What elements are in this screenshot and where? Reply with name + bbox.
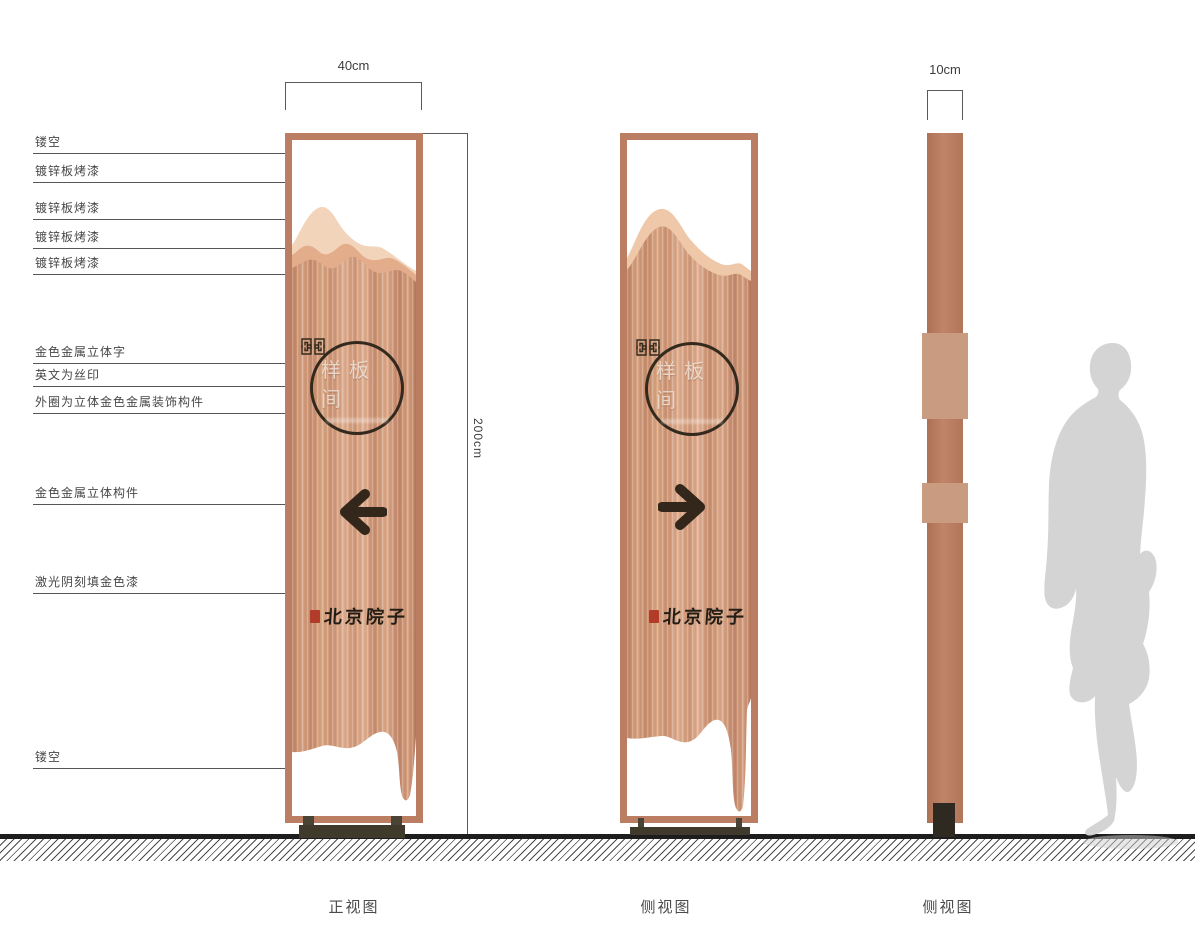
circle-emblem: 样板间 <box>645 342 739 436</box>
annotation-hollow-top: 镂空 <box>33 133 309 154</box>
caption-side-view-1: 侧视图 <box>616 896 716 917</box>
dim-front-width-bracket <box>285 82 422 110</box>
profile-emblem-band <box>922 333 968 419</box>
side-panel-graphic <box>627 140 751 816</box>
front-panel-graphic <box>292 140 416 816</box>
brand-name-text: 北京院子 <box>323 603 409 629</box>
profile-base-block <box>933 803 955 837</box>
dim-height: 200cm <box>471 418 485 459</box>
left-arrow-icon <box>331 488 387 536</box>
dim-height-line <box>467 133 468 834</box>
right-arrow-icon <box>658 483 714 531</box>
figure-shadow <box>1083 835 1178 849</box>
room-name-text: 样板间 <box>313 354 401 412</box>
annotation-label: 外圈为立体金色金属装饰构件 <box>35 395 204 409</box>
annotation-label: 镂空 <box>35 750 61 764</box>
sign-base-foot <box>299 825 405 838</box>
fret-ornament-icon <box>635 345 661 357</box>
annotation-label: 金色金属立体构件 <box>35 486 139 500</box>
annotation-label: 金色金属立体字 <box>35 345 126 359</box>
person-silhouette <box>1036 340 1178 860</box>
dim-depth: 10cm <box>900 62 990 77</box>
annotation-hollow-bottom: 镂空 <box>33 748 305 769</box>
english-subtext <box>326 418 388 423</box>
caption-side-view-2: 侧视图 <box>898 896 998 917</box>
english-subtext <box>661 419 723 424</box>
brand-logo: 北京院子 <box>310 603 408 629</box>
fret-ornament-icon <box>300 344 326 356</box>
side-view-sign: 样板间 北京院子 <box>620 133 758 823</box>
annotation-galvanized-1: 镀锌板烤漆 <box>33 162 286 183</box>
annotation-label: 激光阴刻填金色漆 <box>35 575 139 589</box>
annotation-galvanized-3: 镀锌板烤漆 <box>33 228 295 249</box>
annotation-laser-engraved: 激光阴刻填金色漆 <box>33 573 310 594</box>
seal-icon <box>310 610 320 623</box>
sign-base-foot <box>630 827 750 835</box>
annotation-outer-ring: 外圈为立体金色金属装饰构件 <box>33 393 315 414</box>
dim-front-width: 40cm <box>285 58 422 73</box>
profile-arrow-band <box>922 483 968 523</box>
brand-name-text: 北京院子 <box>662 603 748 629</box>
design-drawing-canvas: 40cm 10cm 200cm 镂空 镀锌板烤漆 镀锌板烤漆 镀锌板烤漆 镀锌板… <box>0 0 1195 927</box>
annotation-galvanized-4: 镀锌板烤漆 <box>33 254 295 275</box>
annotation-label: 镀锌板烤漆 <box>35 256 100 270</box>
annotation-galvanized-2: 镀锌板烤漆 <box>33 199 325 220</box>
room-name-text: 样板间 <box>648 355 736 413</box>
annotation-label: 镀锌板烤漆 <box>35 201 100 215</box>
profile-view-sign <box>927 133 963 823</box>
seal-icon <box>649 610 659 623</box>
annotation-label: 英文为丝印 <box>35 368 100 382</box>
annotation-label: 镀锌板烤漆 <box>35 230 100 244</box>
front-view-sign: 样板间 北京院子 <box>285 133 423 823</box>
annotation-label: 镀锌板烤漆 <box>35 164 100 178</box>
caption-front-view: 正视图 <box>304 896 404 917</box>
dim-height-tick <box>423 133 467 134</box>
dim-depth-bracket <box>927 90 963 120</box>
brand-logo: 北京院子 <box>649 603 747 629</box>
ground-hatch <box>0 839 1195 861</box>
annotation-label: 镂空 <box>35 135 61 149</box>
circle-emblem: 样板间 <box>310 341 404 435</box>
